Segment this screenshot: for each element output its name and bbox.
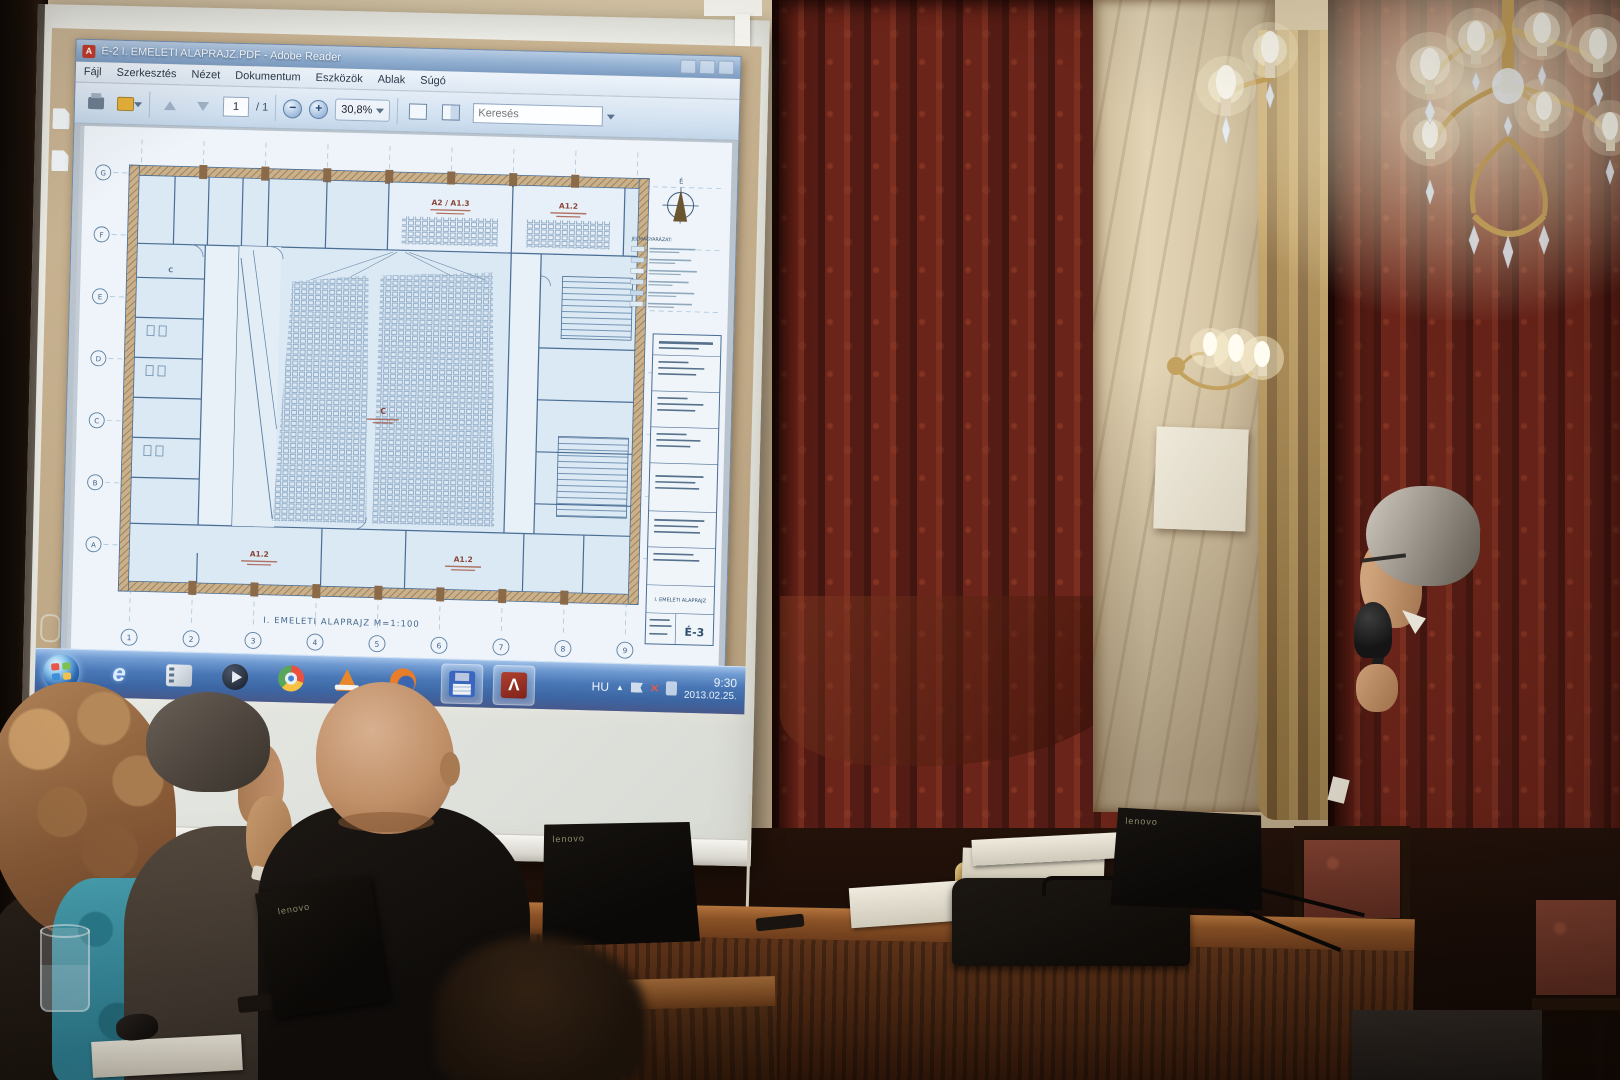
svg-text:C: C (168, 266, 173, 274)
zoom-level-value: 30,8% (341, 104, 373, 117)
svg-text:B: B (93, 479, 98, 487)
toolbar-separator (397, 98, 399, 124)
paperclip-icon[interactable] (40, 614, 61, 643)
svg-text:A: A (91, 541, 96, 549)
action-center-flag-icon[interactable] (631, 682, 643, 692)
toolbar-separator (275, 95, 277, 121)
zoom-level-dropdown[interactable]: 30,8% (335, 98, 391, 121)
room-label-stage: C (380, 407, 386, 416)
microphone[interactable] (1354, 602, 1392, 658)
clock-time: 9:30 (714, 677, 738, 691)
wall-sconce-icon (1140, 322, 1290, 437)
desktop-document-icon-2[interactable] (51, 150, 69, 171)
taskbar-movie-maker[interactable] (159, 656, 200, 695)
svg-text:G: G (100, 169, 106, 177)
movie-maker-icon (166, 664, 193, 687)
arrow-up-icon (164, 100, 176, 109)
menu-edit[interactable]: Szerkesztés (116, 67, 176, 81)
page-view-icon (409, 103, 427, 119)
adobe-reader-window: A É-2 I. EMELETI ALAPRAJZ.PDF - Adobe Re… (60, 39, 742, 670)
network-error-icon[interactable]: ✕ (650, 681, 660, 694)
north-label: É (679, 176, 683, 185)
svg-text:D: D (96, 355, 102, 363)
svg-text:3: 3 (251, 636, 256, 645)
laptop-brand-label: lenovo (552, 833, 585, 844)
next-page-button[interactable] (190, 93, 217, 120)
water-glass[interactable] (40, 928, 90, 1012)
split-view-icon (442, 104, 460, 120)
svg-text:7: 7 (498, 643, 503, 652)
print-button[interactable] (83, 90, 110, 117)
printer-icon (88, 97, 104, 109)
sheet-code: É-3 (684, 626, 704, 640)
taskbar-chrome[interactable] (271, 659, 312, 698)
laptop-brand-label: lenovo (1125, 816, 1158, 827)
close-button[interactable] (718, 60, 734, 74)
maximize-button[interactable] (699, 60, 715, 74)
fit-width-view-button[interactable] (438, 99, 465, 126)
taskbar-clock[interactable]: 9:30 2013.02.25. (684, 676, 737, 703)
svg-text:C: C (94, 417, 99, 425)
pdf-file-icon: A (82, 44, 95, 57)
svg-text:4: 4 (312, 638, 317, 647)
laptop-center[interactable]: lenovo (538, 819, 700, 946)
menu-tools[interactable]: Eszközök (315, 72, 362, 85)
conference-room-photo: A É-2 I. EMELETI ALAPRAJZ.PDF - Adobe Re… (0, 0, 1620, 1080)
svg-text:9: 9 (622, 646, 627, 655)
wall-speaker (1153, 426, 1249, 531)
room-label-top-right: A1.2 (559, 201, 578, 210)
media-player-icon (222, 664, 249, 691)
single-page-view-button[interactable] (405, 98, 432, 125)
menu-help[interactable]: Súgó (420, 75, 446, 88)
toolbar-separator (149, 92, 151, 118)
menu-document[interactable]: Dokumentum (235, 70, 301, 84)
caret-down-icon (607, 114, 615, 119)
pdf-page-area[interactable]: A2 / A1.3 A1.2 A1.2 A1.2 C C (61, 124, 739, 671)
chrome-icon (278, 665, 305, 692)
floor-plan-drawing: A2 / A1.3 A1.2 A1.2 A1.2 C C (61, 124, 739, 671)
minimize-button[interactable] (680, 59, 696, 73)
search-field-wrap (473, 103, 615, 127)
caret-down-icon (133, 102, 141, 107)
clock-date: 2013.02.25. (684, 690, 737, 703)
taskbar-file-manager[interactable] (440, 663, 483, 704)
previous-page-button[interactable] (157, 92, 184, 119)
svg-text:8: 8 (560, 645, 565, 654)
zoom-out-button[interactable]: − (283, 99, 302, 118)
battery-icon[interactable] (666, 681, 677, 695)
desktop-document-icon[interactable] (52, 108, 70, 129)
room-label-bottom-left: A1.2 (250, 549, 269, 558)
room-label-bottom-center: A1.2 (454, 555, 473, 564)
save-icon (116, 97, 133, 111)
presenter-legs (1352, 1010, 1542, 1080)
bald-man-ear (440, 752, 460, 786)
svg-text:F: F (99, 231, 103, 239)
projected-desktop: A É-2 I. EMELETI ALAPRAJZ.PDF - Adobe Re… (35, 28, 762, 714)
bald-man-neck-crease (338, 812, 434, 832)
save-button[interactable] (116, 91, 143, 118)
adobe-reader-icon: Λ (501, 672, 528, 699)
svg-text:2: 2 (189, 635, 194, 644)
tray-expand-icon[interactable]: ▲ (616, 682, 624, 691)
floppy-disk-icon (449, 671, 476, 698)
svg-text:1: 1 (127, 633, 132, 642)
screen-mount (704, 0, 762, 16)
audience-laptop[interactable]: lenovo (255, 876, 389, 1019)
room-label-top-left: A2 / A1.3 (431, 198, 469, 208)
taskbar-adobe-reader[interactable]: Λ (492, 665, 535, 706)
search-input[interactable] (473, 103, 603, 126)
caret-down-icon (376, 108, 384, 113)
laptop-right[interactable]: lenovo (1110, 807, 1265, 910)
taskbar-media-player[interactable] (215, 657, 256, 696)
menu-window[interactable]: Ablak (378, 74, 406, 87)
menu-file[interactable]: Fájl (84, 66, 102, 78)
zoom-in-button[interactable]: + (309, 99, 328, 118)
svg-text:E: E (98, 293, 103, 301)
laptop-brand-label: lenovo (277, 901, 311, 916)
presenter-hair (1366, 486, 1480, 586)
page-count-label: / 1 (256, 101, 269, 113)
page-number-input[interactable]: 1 (223, 97, 250, 118)
svg-text:6: 6 (436, 641, 441, 650)
system-tray: HU ▲ ✕ 9:30 2013.02.25. (591, 662, 742, 714)
title-block: I. EMELETI ALAPRAJZ É-3 (645, 334, 721, 646)
arrow-down-icon (197, 101, 209, 110)
svg-text:5: 5 (374, 640, 379, 649)
menu-view[interactable]: Nézet (191, 69, 220, 82)
chandelier-icon (1178, 0, 1620, 288)
man-glasses-hair (146, 692, 270, 792)
internet-explorer-icon: e (112, 660, 126, 688)
window-title: É-2 I. EMELETI ALAPRAJZ.PDF - Adobe Read… (101, 45, 341, 63)
language-indicator[interactable]: HU (591, 679, 609, 693)
presenter-hand (1356, 664, 1398, 712)
